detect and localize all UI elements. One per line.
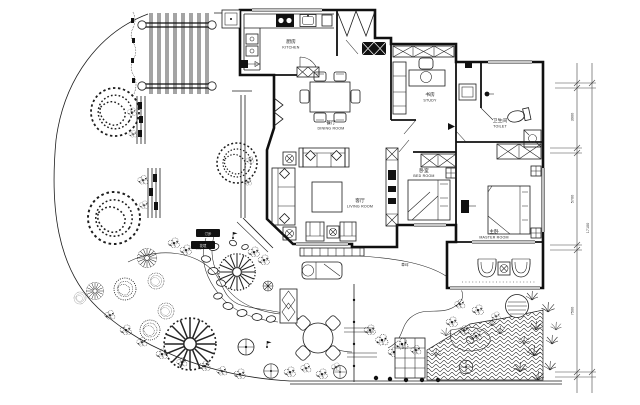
terrace [300, 248, 364, 279]
lawn-label: 草坪 [401, 262, 409, 267]
living-label-zh: 客厅 [355, 197, 365, 204]
dimension-seg1: 3900 [571, 113, 575, 121]
kitchen-label-zh: 厨房 [286, 38, 296, 45]
floor-plan-drawing: 汀步 花境 [0, 0, 640, 405]
kitchen-label-en: KITCHEN [282, 46, 299, 50]
vine-strip-lower [138, 168, 160, 218]
dining-label-zh: 餐厅 [326, 119, 336, 126]
floor-plan-canvas: 汀步 花境 [0, 0, 640, 405]
dimension-total: 17100 [586, 223, 590, 234]
dimension-seg3: 7500 [571, 307, 575, 315]
master-label-zh: 主卧 [489, 228, 499, 235]
garden-tag-stepping: 汀步 [196, 229, 220, 237]
dimension-lines: 3900 5700 7500 17100 [550, 63, 596, 393]
bedroom-label-en: BED ROOM [413, 174, 434, 178]
marker-flag-1 [232, 232, 238, 239]
study-label-zh: 书房 [425, 91, 435, 98]
flower-pot [263, 281, 273, 291]
garden-tag-flowerbed: 花境 [191, 241, 215, 249]
marker-flag-2 [266, 341, 272, 348]
toilet-label-en: TOILET [493, 125, 507, 129]
lounge-chair [302, 262, 342, 279]
dining-label-en: DINING ROOM [318, 127, 345, 131]
garden-table-set [295, 315, 342, 362]
master-tv-icon [461, 200, 469, 213]
patio-paving [427, 310, 543, 380]
shoe-cabinet [362, 42, 386, 55]
vine-strip-upper [127, 96, 145, 144]
study-label-en: STUDY [423, 99, 437, 103]
garden-tag-flowerbed-text: 花境 [200, 243, 207, 248]
garden-fence [344, 284, 377, 382]
house: 厨房 KITCHEN 餐厅 DINING ROOM 书房 STUDY 卫生间 T… [222, 8, 545, 291]
garden-tag-stepping-text: 汀步 [205, 231, 212, 236]
utility-box [222, 10, 240, 28]
dimension-seg2: 5700 [571, 195, 575, 203]
garden-pond [506, 295, 529, 318]
planter-column [280, 289, 297, 323]
pergola [131, 12, 216, 94]
living-label-en: LIVING ROOM [347, 205, 373, 209]
master-label-en: MASTER ROOM [479, 236, 508, 240]
toilet-label-zh: 卫生间 [493, 117, 508, 124]
bedroom-label-zh: 卧室 [419, 167, 429, 174]
tv-icon [388, 170, 396, 180]
